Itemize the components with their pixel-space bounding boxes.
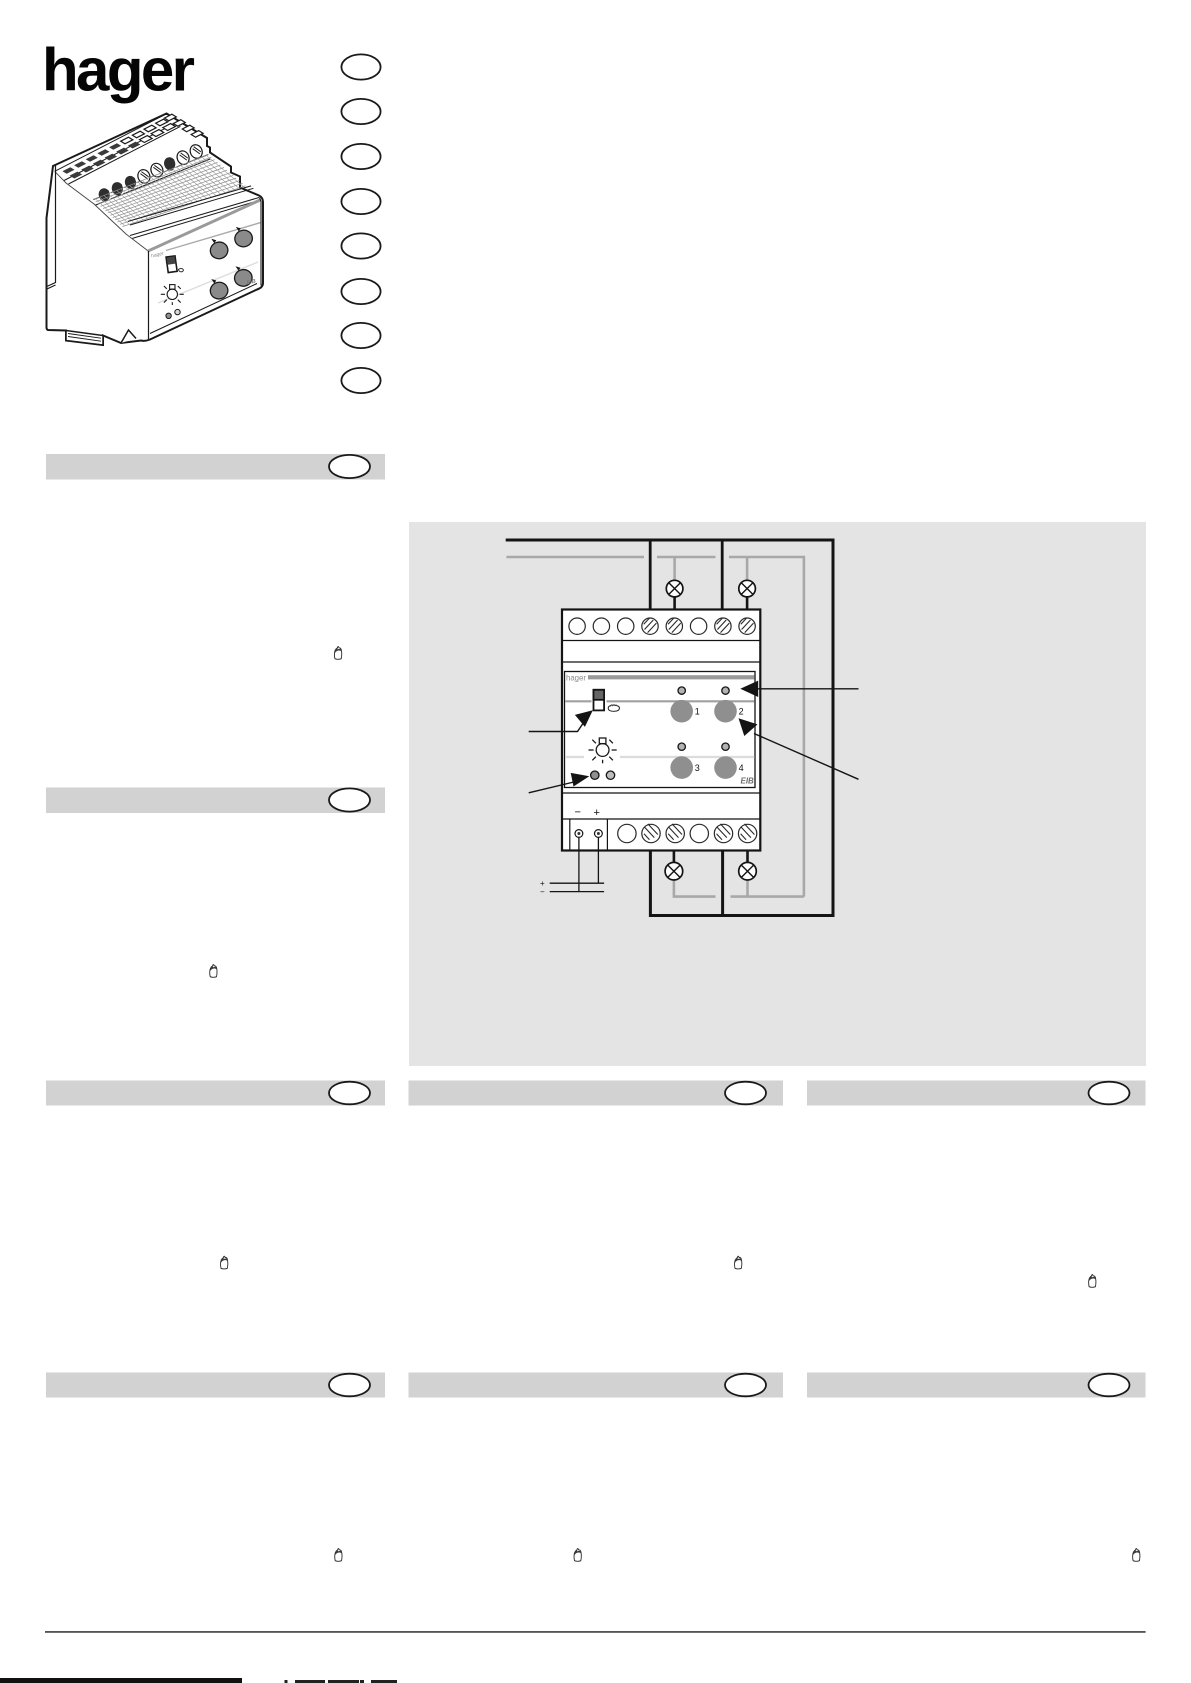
svg-text:+: + bbox=[594, 807, 600, 819]
svg-text:3: 3 bbox=[695, 763, 700, 773]
svg-text:EIB: EIB bbox=[741, 777, 755, 786]
svg-text:hager: hager bbox=[42, 37, 195, 104]
svg-text:−: − bbox=[575, 807, 581, 819]
svg-text:2: 2 bbox=[739, 707, 744, 717]
svg-text:4: 4 bbox=[739, 763, 744, 773]
svg-text:hager: hager bbox=[566, 674, 586, 683]
svg-text:1: 1 bbox=[695, 707, 700, 717]
svg-text:−: − bbox=[540, 888, 545, 897]
